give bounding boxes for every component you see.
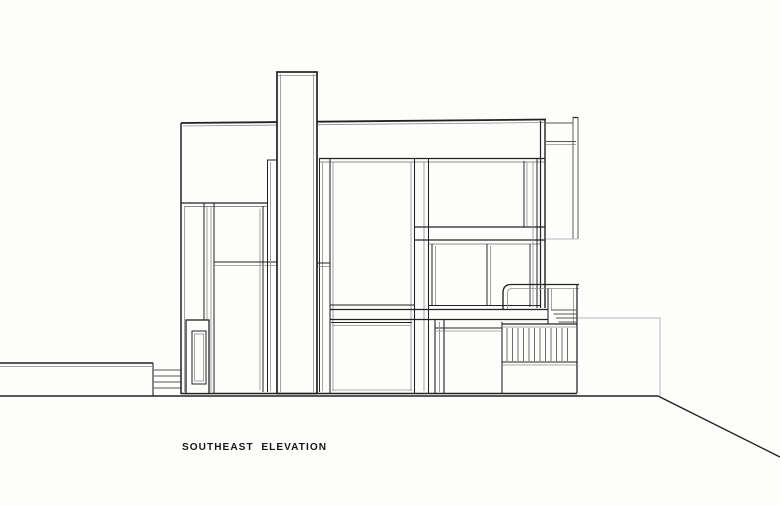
scanned-elevation-sheet: SOUTHEAST ELEVATION [0,0,780,506]
drawing-title: SOUTHEAST ELEVATION [182,441,327,453]
ground-slope [658,396,780,457]
terrace-outline-faint [578,318,660,396]
elevation-drawing [0,0,780,506]
chimney [277,72,317,394]
roof-line [181,120,546,124]
